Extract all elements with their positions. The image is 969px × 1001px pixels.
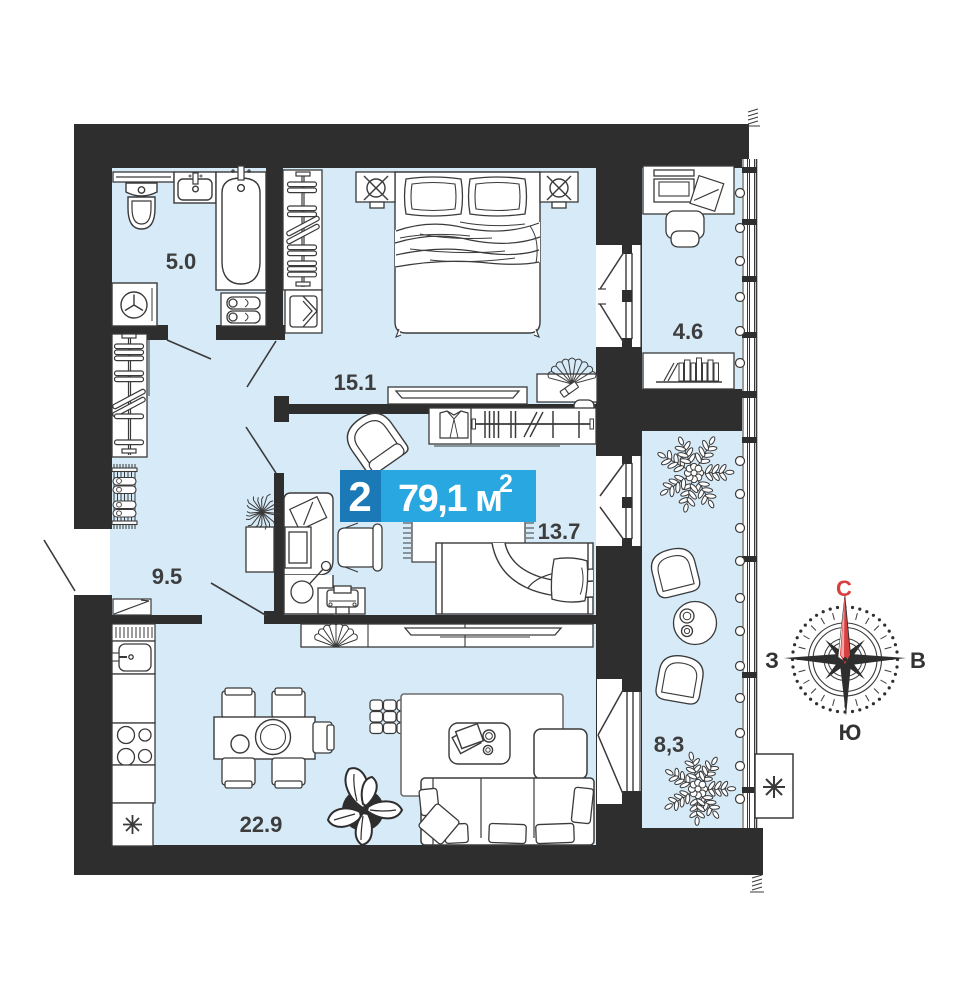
svg-text:С: С <box>836 576 852 601</box>
svg-text:5.0: 5.0 <box>166 249 197 274</box>
svg-text:4.6: 4.6 <box>673 319 704 344</box>
svg-text:Ю: Ю <box>839 720 862 745</box>
svg-text:В: В <box>910 648 926 673</box>
svg-text:З: З <box>765 648 779 673</box>
svg-text:15.1: 15.1 <box>334 370 377 395</box>
svg-text:22.9: 22.9 <box>240 812 283 837</box>
svg-text:8,3: 8,3 <box>654 732 685 757</box>
svg-text:2: 2 <box>348 473 371 520</box>
svg-text:9.5: 9.5 <box>152 564 183 589</box>
svg-text:79,1 м: 79,1 м <box>398 478 502 520</box>
svg-text:13.7: 13.7 <box>538 519 581 544</box>
svg-text:2: 2 <box>499 470 513 498</box>
